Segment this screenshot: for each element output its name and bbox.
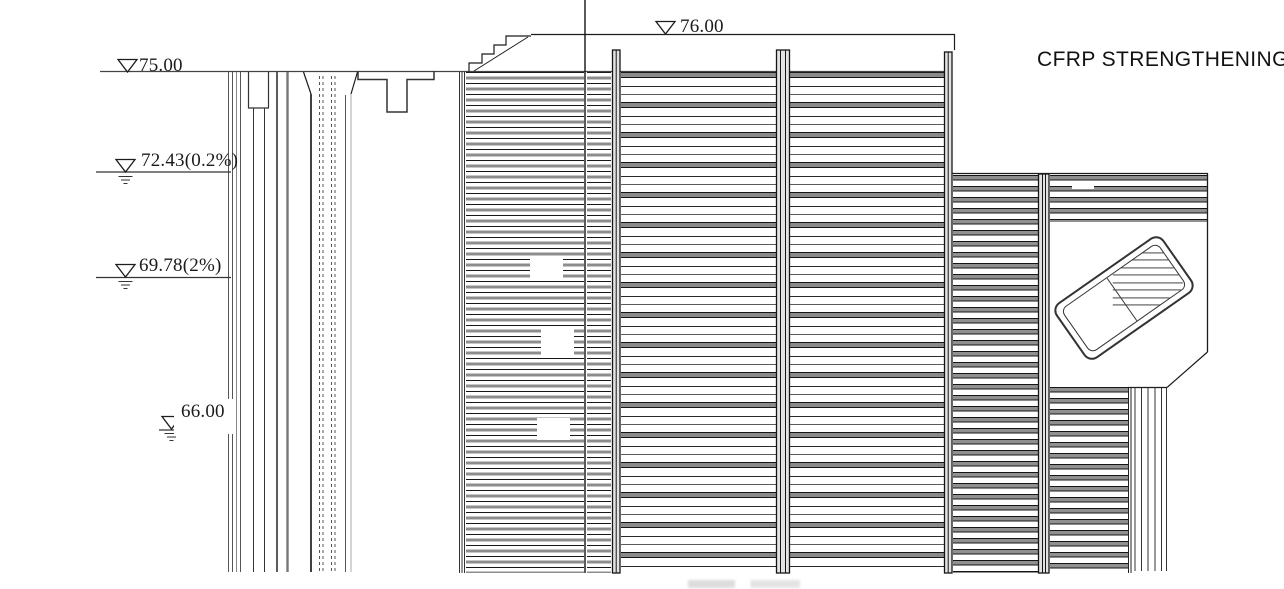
- hatch-gap-patch: [541, 328, 574, 356]
- hatch-gap-patch: [855, 79, 884, 85]
- flare-right: [351, 72, 358, 94]
- hatch-gap-patch: [530, 257, 563, 278]
- block-left-edge: [460, 72, 465, 573]
- level-marker-icon: [116, 160, 135, 173]
- elevation-label-76: 76.00: [680, 16, 724, 38]
- level-marker-icons: [116, 22, 675, 430]
- deck-line-76: [531, 35, 955, 51]
- level-marker-icon: [118, 60, 137, 73]
- level-marker-icon: [116, 265, 135, 278]
- pier-lines: [229, 72, 358, 572]
- elevation-label-75: 75.00: [139, 55, 183, 77]
- elevation-label-7243: 72.43(0.2%): [141, 150, 238, 172]
- joint-posts: [613, 50, 1050, 573]
- hatch-gap-patch: [1072, 184, 1094, 189]
- elevation-label-66: 66.00: [181, 401, 225, 423]
- drawing-title: CFRP STRENGTHENING: [1037, 48, 1284, 72]
- elevation-label-6978: 69.78(2%): [139, 255, 222, 277]
- elevation-leaders: [96, 172, 231, 430]
- level-marker-icon: [656, 22, 675, 35]
- corner-chamfer: [1167, 352, 1208, 388]
- water-surface-ticks: [119, 177, 179, 441]
- right-block-outline: [952, 174, 1208, 574]
- pier-slot: [249, 72, 269, 108]
- flare-left: [304, 72, 312, 94]
- gallery-notch: [358, 71, 434, 112]
- hatch-gap-patch: [537, 418, 570, 440]
- cad-drawing-canvas: 75.00 72.43(0.2%) 69.78(2%) 66.00 76.00 …: [0, 0, 1284, 589]
